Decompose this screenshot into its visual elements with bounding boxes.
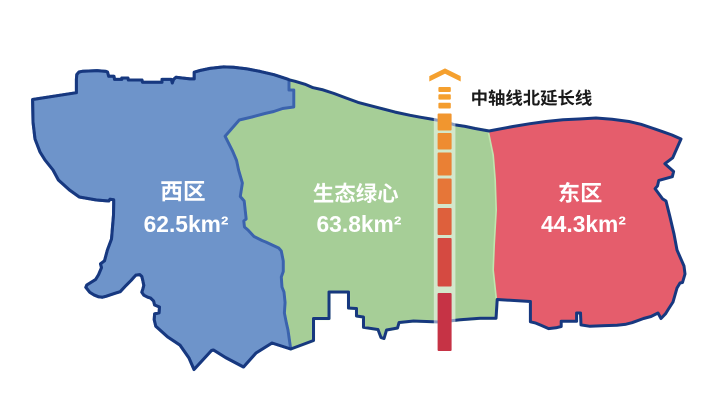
svg-text:62.5km²: 62.5km² [144, 211, 229, 237]
svg-text:44.3km²: 44.3km² [541, 211, 626, 237]
svg-text:63.8km²: 63.8km² [317, 211, 402, 237]
